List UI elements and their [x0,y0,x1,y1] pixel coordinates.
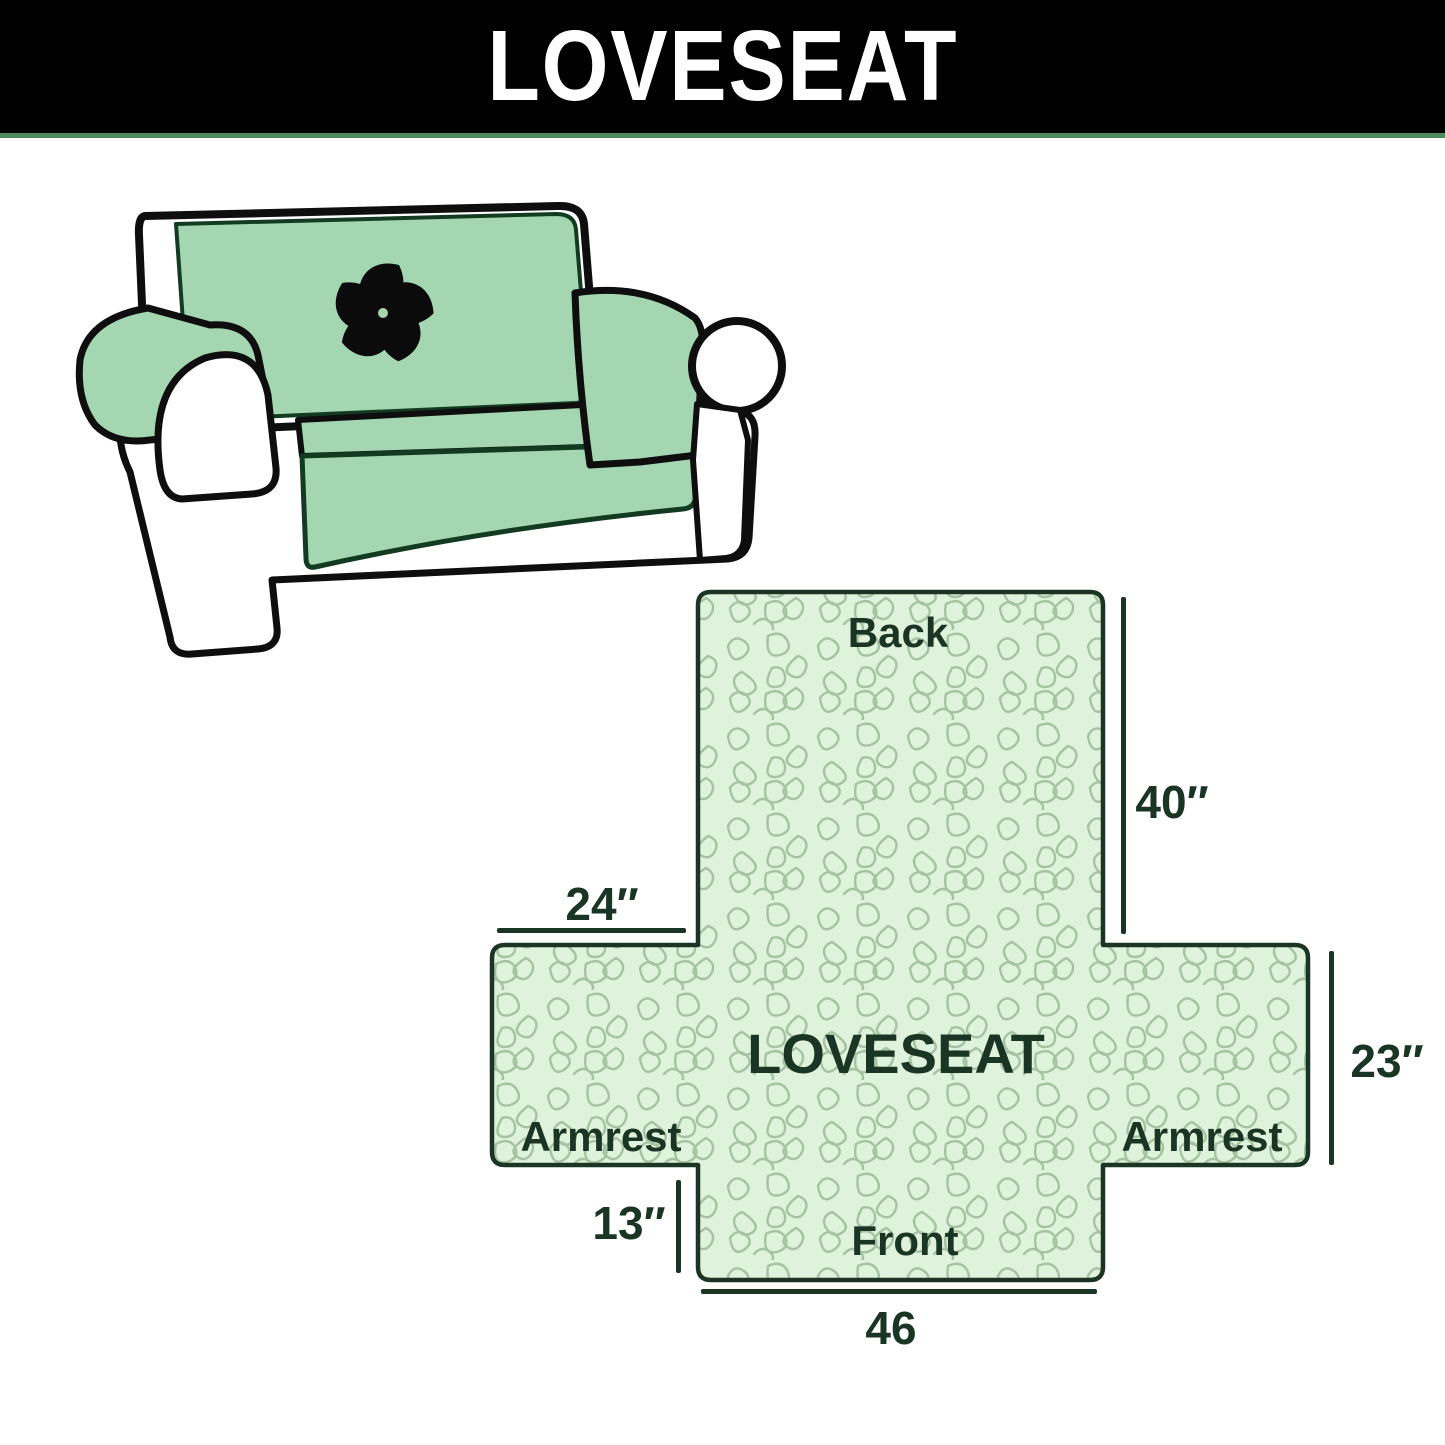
title-banner: LOVESEAT [0,0,1445,138]
cover-flat-shape [492,592,1308,1280]
sofa-right-arm-side [693,404,748,560]
banner-title: LOVESEAT [487,9,958,124]
dim-line-armrest-height [1329,951,1334,1165]
dim-armrest-height-label: 23″ [1350,1038,1423,1084]
center-panel-label: LOVESEAT [747,1026,1045,1082]
armrest-right-label: Armrest [1121,1116,1282,1158]
loveseat-cover-infographic: LOVESEAT [0,0,1445,1445]
cover-layout-diagram [470,578,1340,1303]
back-panel-label: Back [848,612,948,654]
dim-back-height-label: 40″ [1135,779,1208,825]
armrest-left-label: Armrest [520,1116,681,1158]
dim-armrest-width-label: 24″ [565,881,638,927]
dim-line-front-width [701,1289,1097,1294]
sofa-right-arm-roll [692,321,782,411]
dim-line-front-skirt [676,1180,681,1273]
dim-line-armrest-width [497,928,686,933]
front-panel-label: Front [851,1220,958,1262]
dim-line-back-height [1121,597,1126,934]
sofa-left-arm-roll [158,355,276,499]
dim-front-skirt-label: 13″ [592,1200,665,1246]
cover-right-armrest [575,290,703,465]
dim-front-width-label: 46 [865,1305,916,1351]
